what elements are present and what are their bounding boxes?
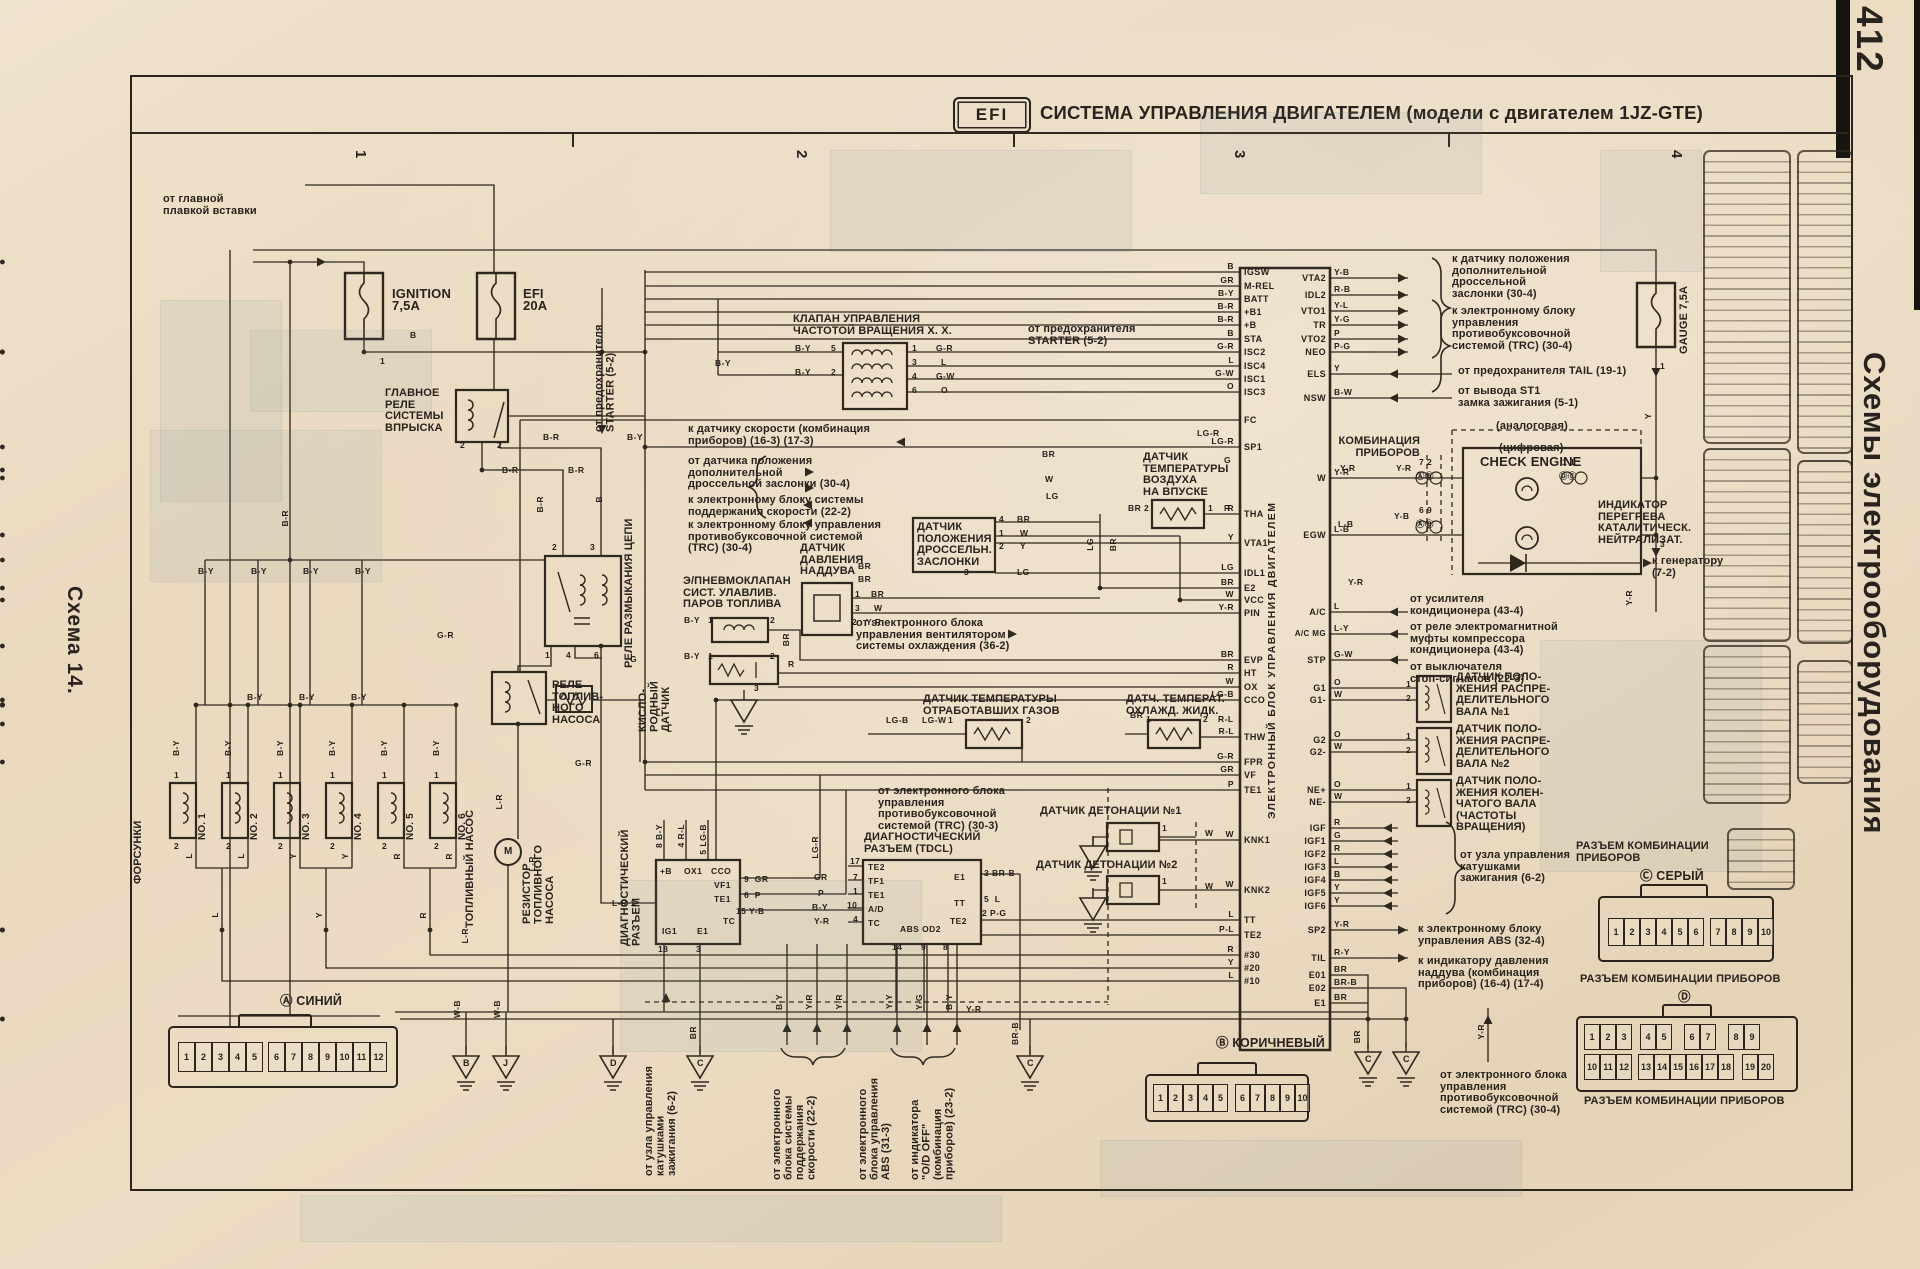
wire-label: CCO bbox=[711, 866, 731, 876]
connector-d-pin: 7 bbox=[1700, 1024, 1716, 1050]
wire-label: LG bbox=[1046, 491, 1059, 501]
ecu-pin-name: STA bbox=[1244, 334, 1263, 344]
trc-note-right: к электронному блоку управления противоб… bbox=[1452, 306, 1575, 352]
cluster-conn-d-label: РАЗЪЕМ КОМБИНАЦИИ ПРИБОРОВ bbox=[1580, 974, 1781, 986]
wire-label: TE1 bbox=[714, 894, 731, 904]
wire-path bbox=[545, 556, 621, 646]
ecu-pin-name: M-REL bbox=[1244, 281, 1275, 291]
ecu-pin-name: IGSW bbox=[1244, 267, 1270, 277]
injector-pin: 1 bbox=[434, 770, 439, 780]
ecu-pin-name: NE+ bbox=[1282, 785, 1326, 795]
cam2-label: ДАТЧИК ПОЛО- ЖЕНИЯ РАСПРЕ- ДЕЛИТЕЛЬНОГО … bbox=[1456, 724, 1550, 770]
wire-label: Y-Y bbox=[884, 994, 894, 1009]
connector-a-pin: 5 bbox=[246, 1042, 263, 1072]
wire-path bbox=[1398, 335, 1407, 344]
ecu-pin-name: IDL1 bbox=[1244, 568, 1265, 578]
wire-label: B-Y bbox=[247, 692, 263, 702]
ecu-pin-name: FC bbox=[1244, 415, 1257, 425]
wire-label: 1 bbox=[545, 650, 550, 660]
connector-d-pin: 16 bbox=[1686, 1054, 1702, 1080]
wire-path bbox=[1522, 535, 1532, 540]
connector-d-pin: 20 bbox=[1758, 1054, 1774, 1080]
digital-note: (цифровая) bbox=[1499, 443, 1564, 455]
wire-label: B-Y bbox=[355, 566, 371, 576]
wire-path bbox=[222, 783, 248, 838]
ecu-pin-name: G1 bbox=[1282, 683, 1326, 693]
wire-label: E1 bbox=[954, 872, 965, 882]
wire-label: BR bbox=[1128, 503, 1141, 513]
wire-label: OX1 bbox=[684, 866, 702, 876]
wire-label: B-Y bbox=[795, 343, 811, 353]
wire-path bbox=[712, 618, 768, 642]
wire-label: 1 bbox=[1406, 679, 1411, 689]
ecu-pin-name: ISC1 bbox=[1244, 374, 1266, 384]
knock1-label: ДАТЧИК ДЕТОНАЦИИ №1 bbox=[1040, 806, 1182, 818]
abs-note-right: к электронному блоку управления ABS (32-… bbox=[1418, 924, 1545, 947]
wire-color-label: Y-L bbox=[1334, 300, 1349, 310]
wire-path bbox=[1389, 370, 1398, 379]
connector-d-pin: 19 bbox=[1742, 1054, 1758, 1080]
tps-label: ДАТЧИК ПОЛОЖЕНИЯ ДРОССЕЛЬН. ЗАСЛОНКИ bbox=[917, 522, 992, 568]
wire-label: TC bbox=[868, 918, 880, 928]
od-off-note-vertical: от индикатора "O/D OFF" (комбинация приб… bbox=[910, 1044, 956, 1180]
wire-label: R bbox=[418, 912, 428, 919]
wire-path bbox=[1417, 728, 1451, 774]
wire-color-label: R-Y bbox=[1334, 947, 1350, 957]
ecu-pin-name: VF bbox=[1244, 770, 1256, 780]
wire-label: 6 bbox=[912, 385, 917, 395]
wire-label: B bbox=[594, 496, 604, 503]
connector-b-pin: 6 bbox=[1235, 1084, 1250, 1112]
ecu-pin-name: SP2 bbox=[1282, 925, 1326, 935]
wire-label: ⒶⒷ bbox=[1416, 470, 1434, 482]
wire-label: A/D bbox=[868, 904, 884, 914]
wire-label: 4 bbox=[566, 650, 571, 660]
wire-path bbox=[443, 793, 448, 823]
wire-color-label: O bbox=[1334, 677, 1341, 687]
wire-label: 7 2 bbox=[1419, 457, 1432, 467]
connector-a-pin: 6 bbox=[268, 1042, 285, 1072]
wire-color-label: L bbox=[1158, 355, 1234, 365]
ecu-pin-name: NEO bbox=[1282, 347, 1326, 357]
connector-d-pin: 5 bbox=[1656, 1024, 1672, 1050]
wire-path bbox=[0, 703, 198, 708]
wire-label: B-R bbox=[543, 432, 559, 442]
injector-label: NO. 4 bbox=[353, 788, 365, 840]
ecu-pin-name: STP bbox=[1282, 655, 1326, 665]
connector-b-pin: 4 bbox=[1198, 1084, 1213, 1112]
connector-a-pin: 11 bbox=[353, 1042, 370, 1072]
ecu-pin-name: THW bbox=[1244, 732, 1266, 742]
wire-color-label: L bbox=[1334, 601, 1340, 611]
wire-label: TE1 bbox=[868, 890, 885, 900]
starter-note: от предохранителя STARTER (5-2) bbox=[1028, 324, 1136, 347]
wire-label: B-R bbox=[568, 465, 584, 475]
injector-label: NO. 3 bbox=[301, 788, 313, 840]
wire-color-label: B bbox=[1334, 869, 1341, 879]
efi-fuse-label: EFI 20A bbox=[523, 288, 547, 311]
ecu-pin-name: IGF6 bbox=[1282, 901, 1326, 911]
starter-note-vertical: от предохранителя STARTER (5-2) bbox=[594, 264, 617, 432]
wire-color-label: BR bbox=[1158, 577, 1234, 587]
wire-path bbox=[802, 583, 852, 635]
wire-path bbox=[0, 760, 647, 765]
wire-label: 1 bbox=[1660, 361, 1665, 371]
wire-label: L bbox=[184, 853, 194, 859]
ecu-pin-name: #30 bbox=[1244, 950, 1260, 960]
wire-path bbox=[1516, 527, 1538, 549]
ecu-pin-name: HT bbox=[1244, 668, 1257, 678]
wire-path bbox=[953, 1023, 962, 1032]
wire-label: 3 bbox=[1660, 539, 1665, 549]
injector-pin: 2 bbox=[330, 841, 335, 851]
wire-label: R bbox=[1224, 503, 1231, 513]
wire-path bbox=[1107, 876, 1159, 904]
cruise-note: к электронному блоку системы поддержания… bbox=[688, 495, 864, 518]
wire-path bbox=[1389, 630, 1398, 639]
wire-label: Y-R bbox=[1348, 577, 1364, 587]
connector-a-pin: 1 bbox=[178, 1042, 195, 1072]
wire-label: 1 bbox=[1162, 823, 1167, 833]
wire-label: 2 bbox=[1203, 714, 1208, 724]
wire-label: L-R bbox=[494, 794, 504, 810]
wire-color-label: B-Y bbox=[1158, 288, 1234, 298]
wire-label: BR bbox=[1108, 538, 1118, 551]
injector-pin: 1 bbox=[382, 770, 387, 780]
ecu-pin-name: TE1 bbox=[1244, 785, 1262, 795]
wire-label: 1 bbox=[853, 886, 858, 896]
wire-path bbox=[0, 644, 603, 649]
wire-color-label: R bbox=[1334, 843, 1341, 853]
wire-path bbox=[430, 783, 456, 838]
wire-path bbox=[1389, 608, 1398, 617]
wire-color-label: GR bbox=[1158, 275, 1234, 285]
wire-label: W-B bbox=[452, 1000, 462, 1018]
wire-label: TE2 bbox=[950, 916, 967, 926]
wire-label: 2 bbox=[831, 367, 836, 377]
wire-label: R bbox=[444, 853, 454, 860]
wire-path bbox=[852, 364, 892, 369]
ecu-connector-pinout bbox=[1797, 150, 1853, 454]
wire-label: 3 bbox=[590, 542, 595, 552]
connector-c-pin: 3 bbox=[1640, 918, 1656, 946]
boost-indicator-note: к индикатору давления наддува (комбинаци… bbox=[1418, 956, 1549, 991]
wire-color-label: P-G bbox=[1334, 341, 1350, 351]
wire-color-label: Y-B bbox=[1334, 267, 1350, 277]
wire-label: B-Y bbox=[303, 566, 319, 576]
ecu-pin-name: VTA2 bbox=[1282, 273, 1326, 283]
wire-path bbox=[896, 438, 905, 447]
ecu-pin-name: A/C MG bbox=[1282, 629, 1326, 638]
wire-path bbox=[1398, 307, 1407, 316]
wire-path bbox=[378, 783, 404, 838]
conn-b-color: Ⓑ КОРИЧНЕВЫЙ bbox=[1216, 1038, 1325, 1050]
wire-label: W bbox=[1045, 474, 1053, 484]
wire-path bbox=[724, 625, 754, 630]
injector-pin: 1 bbox=[174, 770, 179, 780]
wire-label: 3 bbox=[964, 567, 969, 577]
wire-color-label: P bbox=[1158, 779, 1234, 789]
wire-label: B-Y bbox=[251, 566, 267, 576]
ground-label: C bbox=[1027, 1058, 1034, 1068]
o2-sensor-label: КИСЛО- РОДНЫЙ ДАТЧИК bbox=[638, 638, 673, 732]
wire-label: Y bbox=[1020, 541, 1026, 551]
wire-path bbox=[0, 722, 520, 727]
wire-label: B-Y bbox=[299, 692, 315, 702]
wire-path bbox=[1425, 736, 1445, 766]
ecu-pin-name: NSW bbox=[1282, 393, 1326, 403]
wire-path bbox=[1080, 898, 1106, 920]
ecu-pin-name: ISC4 bbox=[1244, 361, 1266, 371]
wire-color-label: W bbox=[1334, 791, 1342, 801]
wire-color-label: W bbox=[1158, 829, 1234, 839]
wire-label: W-B bbox=[492, 1000, 502, 1018]
wire-path bbox=[852, 350, 892, 355]
wire-label: ABS OD2 bbox=[900, 924, 941, 934]
ecu-pin-name: BATT bbox=[1244, 294, 1269, 304]
tdcl-label: ДИАГНОСТИЧЕСКИЙ РАЗЪЕМ (TDCL) bbox=[864, 832, 981, 855]
wire-label: 2 bbox=[1406, 745, 1411, 755]
wire-label: TE2 bbox=[868, 862, 885, 872]
wire-label: Y bbox=[1643, 413, 1653, 419]
wire-label: 2 bbox=[1406, 693, 1411, 703]
injector-pin: 1 bbox=[226, 770, 231, 780]
wire-label: B-R bbox=[535, 496, 545, 512]
connector-a-pin: 4 bbox=[229, 1042, 246, 1072]
coil-unit-note: от узла управления катушками зажигания (… bbox=[1460, 850, 1570, 885]
ecu-pin-name: PIN bbox=[1244, 608, 1260, 618]
wire-path bbox=[1383, 850, 1392, 859]
wire-color-label: G-R bbox=[1158, 751, 1234, 761]
ecu-connector-pinout bbox=[1797, 460, 1853, 644]
wire-label: 1 1 bbox=[1562, 457, 1575, 467]
injector-label: NO. 2 bbox=[249, 788, 261, 840]
wire-path bbox=[852, 392, 892, 397]
motor-letter: M bbox=[504, 846, 513, 857]
wire-label: G bbox=[630, 654, 637, 664]
wire-label: E1 bbox=[697, 926, 708, 936]
wire-label: BR bbox=[688, 1026, 698, 1039]
wire-label: Y-R bbox=[814, 916, 830, 926]
cam1-label: ДАТЧИК ПОЛО- ЖЕНИЯ РАСПРЕ- ДЕЛИТЕЛЬНОГО … bbox=[1456, 672, 1550, 718]
fp-resistor-label: РЕЗИСТОР ТОПЛИВНОГО НАСОСА bbox=[522, 782, 557, 924]
wire-label: B-Y bbox=[774, 994, 784, 1010]
gauge-fuse-label: GAUGE 7,5A bbox=[1679, 280, 1691, 354]
wire-label: 8 B-Y bbox=[654, 824, 664, 848]
connector-b-pin: 8 bbox=[1265, 1084, 1280, 1112]
diag-connector-label: ДИАГНОСТИЧЕСКИЙ РАЗЪЕМ bbox=[620, 786, 643, 946]
wire-path bbox=[0, 928, 224, 933]
ecu-pin-name: EGW bbox=[1282, 530, 1326, 540]
st1-note: от вывода ST1 замка зажигания (5-1) bbox=[1458, 386, 1578, 409]
wire-color-label: Y bbox=[1334, 363, 1340, 373]
bleed-through-artifact bbox=[300, 1195, 1002, 1242]
wire-color-label: B bbox=[1158, 328, 1234, 338]
wire-label: 10 bbox=[847, 900, 857, 910]
connector-d-pin: 15 bbox=[1670, 1054, 1686, 1080]
ecu-pin-name: VCC bbox=[1244, 595, 1264, 605]
wire-path bbox=[558, 572, 607, 624]
wire-label: 2 bbox=[497, 440, 502, 450]
ac-amp-note: от усилителя кондиционера (43-4) bbox=[1410, 594, 1524, 617]
ground-label: C bbox=[1403, 1054, 1410, 1064]
wire-label: 2 P-G bbox=[982, 908, 1006, 918]
wire-label: G-W bbox=[936, 371, 955, 381]
wire-label: 5 LG-B bbox=[698, 824, 708, 855]
ecu-pin-name: KNK1 bbox=[1244, 835, 1270, 845]
wire-path bbox=[1383, 876, 1392, 885]
bleed-through-artifact bbox=[1100, 1140, 1522, 1197]
wire-label: TF1 bbox=[868, 876, 884, 886]
connector-b-pin: 7 bbox=[1250, 1084, 1265, 1112]
wire-label: TC bbox=[723, 916, 735, 926]
wire-color-label: R bbox=[1334, 817, 1341, 827]
wire-color-label: B bbox=[1158, 261, 1234, 271]
ecu-pin-name: W bbox=[1282, 473, 1326, 483]
injectors-label: ФОРСУНКИ bbox=[133, 772, 145, 884]
wire-label: 4 bbox=[853, 914, 858, 924]
ecu-pin-name: #20 bbox=[1244, 963, 1260, 973]
coil-unit-note-vertical: от узла управления катушками зажигания (… bbox=[644, 1034, 679, 1176]
wire-label: B-Y bbox=[944, 994, 954, 1010]
wire-label: 3 bbox=[855, 603, 860, 613]
wire-label: 3 bbox=[754, 683, 759, 693]
analog-note: (аналоговая) bbox=[1496, 421, 1568, 433]
ecu-pin-name: G1- bbox=[1282, 695, 1326, 705]
connector-a-pin: 3 bbox=[212, 1042, 229, 1072]
wire-path bbox=[494, 402, 504, 438]
wire-color-label: R bbox=[1158, 503, 1234, 513]
connector-d-pin: 17 bbox=[1702, 1054, 1718, 1080]
connector-a-pin: 8 bbox=[302, 1042, 319, 1072]
main-relay-label: ГЛАВНОЕ РЕЛЕ СИСТЕМЫ ВПРЫСКА bbox=[385, 388, 444, 434]
wire-color-label: Y-R bbox=[1334, 919, 1350, 929]
wire-label: 2 bbox=[770, 651, 775, 661]
connector-d-pin: 2 bbox=[1600, 1024, 1616, 1050]
ecu-pin-name: G2 bbox=[1282, 735, 1326, 745]
cluster-label: КОМБИНАЦИЯ ПРИБОРОВ bbox=[1316, 436, 1420, 459]
wire-label: 3 bbox=[912, 357, 917, 367]
wire-label: L-R bbox=[460, 928, 470, 944]
circuit-opening-relay-label: РЕЛЕ РАЗМЫКАНИЯ ЦЕПИ bbox=[624, 498, 636, 668]
wire-label: 15 Y-B bbox=[736, 906, 765, 916]
ecu-pin-name: VTA1 bbox=[1244, 538, 1268, 548]
wire-color-label: Y bbox=[1158, 957, 1234, 967]
wire-label: L bbox=[236, 853, 246, 859]
ecu-pin-name: ISC3 bbox=[1244, 387, 1266, 397]
wire-path bbox=[468, 400, 473, 430]
wire-label: BR bbox=[1130, 710, 1143, 720]
wire-label: Y-R bbox=[966, 1004, 982, 1014]
wire-label: 14 bbox=[892, 942, 902, 952]
wire-label: 1 bbox=[1162, 876, 1167, 886]
iat-sensor-label: ДАТЧИК ТЕМПЕРАТУРЫ ВОЗДУХА НА ВПУСКЕ bbox=[1143, 452, 1229, 498]
wire-label: 3 BR-B bbox=[984, 868, 1015, 878]
wire-color-label: Y bbox=[1334, 895, 1340, 905]
ecu-pin-name: THA bbox=[1244, 509, 1264, 519]
ac-clutch-note: от реле электромагнитной муфты компрессо… bbox=[1410, 622, 1558, 657]
wire-label: 2 bbox=[552, 542, 557, 552]
wire-label: 9 bbox=[921, 942, 926, 952]
ecu-pin-name: ISC2 bbox=[1244, 347, 1266, 357]
ecu-connector-pinout bbox=[1797, 660, 1853, 784]
connector-c-pin: 6 bbox=[1688, 918, 1704, 946]
injector-pin: 2 bbox=[174, 841, 179, 851]
wire-label: BR bbox=[1042, 449, 1055, 459]
wire-label: 2 bbox=[1406, 795, 1411, 805]
ecu-pin-name: E2 bbox=[1244, 583, 1256, 593]
connector-b-pin: 2 bbox=[1168, 1084, 1183, 1112]
bleed-through-artifact bbox=[830, 150, 1132, 252]
ecu-pin-name: FPR bbox=[1244, 757, 1263, 767]
bleed-through-artifact bbox=[160, 300, 282, 502]
ecu-pin-name: E02 bbox=[1282, 983, 1326, 993]
wire-label: B-Y bbox=[684, 651, 700, 661]
wire-path bbox=[1432, 258, 1450, 358]
wire-label: B-R bbox=[502, 465, 518, 475]
ecu-pin-name: SP1 bbox=[1244, 442, 1262, 452]
connector-b-pin: 10 bbox=[1295, 1084, 1310, 1112]
wire-label: 17 bbox=[850, 856, 860, 866]
wire-path bbox=[170, 783, 196, 838]
wire-label: BR bbox=[871, 589, 884, 599]
wire-label: VF1 bbox=[714, 880, 731, 890]
cluster-conn-c-label: РАЗЪЕМ КОМБИНАЦИИ ПРИБОРОВ bbox=[1576, 841, 1709, 864]
wire-label: 8 bbox=[943, 942, 948, 952]
wire-label: 1 bbox=[912, 343, 917, 353]
wire-label: G bbox=[1224, 455, 1231, 465]
wire-color-label: BR bbox=[1334, 964, 1347, 974]
wire-color-label: B-W bbox=[1334, 387, 1352, 397]
wire-label: B-Y bbox=[715, 358, 731, 368]
cruise-note-vertical: от электронного блока системы поддержани… bbox=[772, 1044, 818, 1180]
connector-d-pin: 14 bbox=[1654, 1054, 1670, 1080]
wire-path bbox=[1484, 1015, 1493, 1024]
wire-color-label: L bbox=[1158, 909, 1234, 919]
wire-path bbox=[0, 928, 432, 933]
wire-path bbox=[339, 793, 344, 823]
abs-note-vertical: от электронного блока управления ABS (31… bbox=[858, 1050, 893, 1180]
wire-label: 1 bbox=[1406, 731, 1411, 741]
injector-pin: 1 bbox=[278, 770, 283, 780]
ecu-pin-name: NE- bbox=[1282, 797, 1326, 807]
connector-c-pin: 1 bbox=[1608, 918, 1624, 946]
wire-label: B-Y bbox=[275, 740, 285, 756]
wire-label: 1 bbox=[380, 356, 385, 366]
wire-label: 7 bbox=[853, 872, 858, 882]
wire-label: LG-R bbox=[810, 836, 820, 859]
ecu-pin-name: A/C bbox=[1282, 607, 1326, 617]
egt-sensor-label: ДАТЧИК ТЕМПЕРАТУРЫ ОТРАБОТАВШИХ ГАЗОВ bbox=[923, 694, 1060, 717]
bleed-through-artifact bbox=[1600, 150, 1702, 272]
scanned-manual-page: 412 Схемы электрооборудования Схема 14. … bbox=[0, 0, 1920, 1269]
wire-label: 6 9 bbox=[1419, 505, 1432, 515]
wire-color-label: L bbox=[1158, 970, 1234, 980]
ecu-pin-name: TR bbox=[1282, 320, 1326, 330]
wire-path bbox=[326, 783, 352, 838]
wire-label: O bbox=[941, 385, 948, 395]
wire-label: 1 bbox=[708, 615, 713, 625]
connector-c-tab bbox=[1640, 884, 1708, 898]
wire-color-label: BR-B bbox=[1334, 977, 1357, 987]
grid-number: 1 bbox=[352, 150, 369, 158]
connector-c-pin: 7 bbox=[1710, 918, 1726, 946]
wire-color-label: Y bbox=[1158, 532, 1234, 542]
connector-d-pin: 4 bbox=[1640, 1024, 1656, 1050]
wire-label: TT bbox=[954, 898, 965, 908]
fuel-pump-label: ТОПЛИВНЫЙ НАСОС bbox=[465, 786, 477, 928]
wire-path bbox=[1398, 291, 1407, 300]
